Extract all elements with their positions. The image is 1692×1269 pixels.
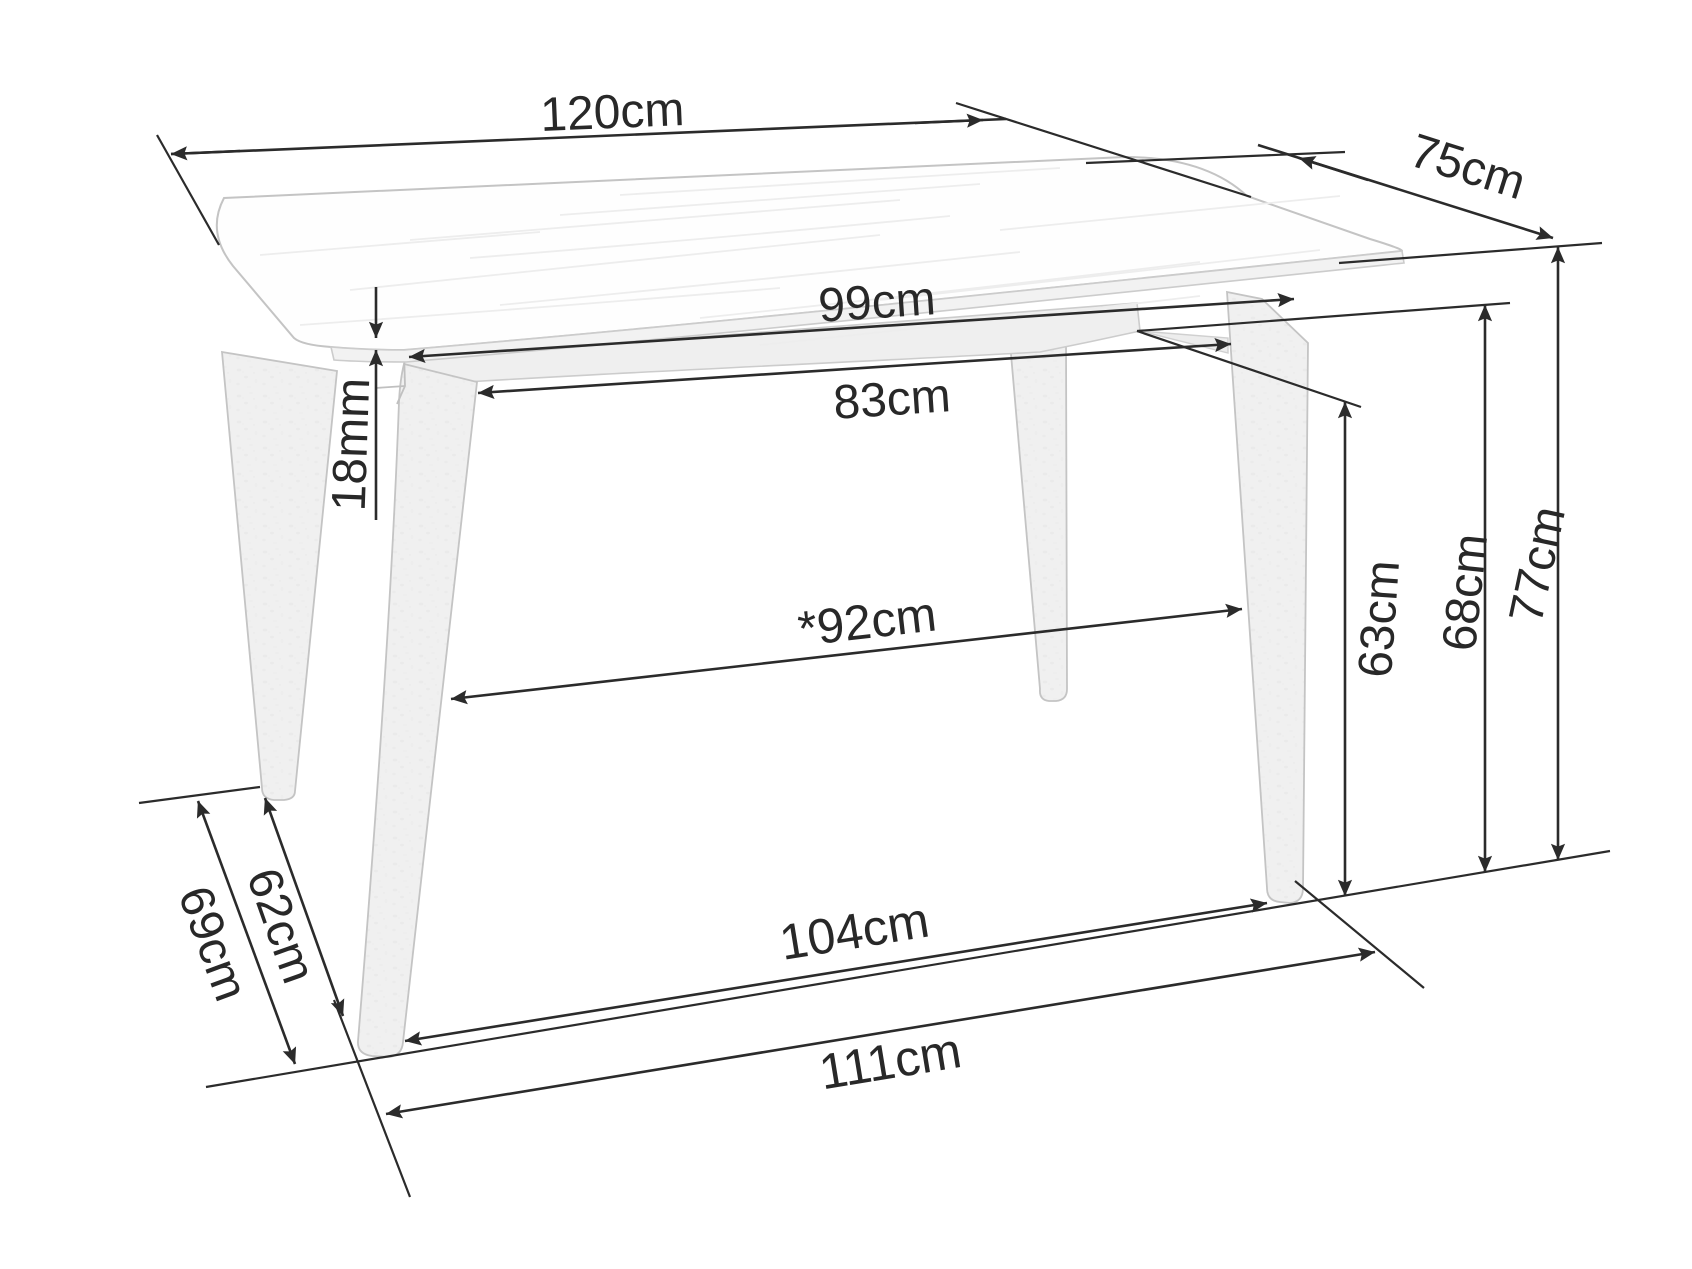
svg-text:77cm: 77cm: [1500, 502, 1576, 628]
svg-text:18mm: 18mm: [323, 377, 381, 512]
svg-text:99cm: 99cm: [817, 272, 938, 333]
svg-text:111cm: 111cm: [815, 1022, 965, 1100]
svg-text:83cm: 83cm: [832, 369, 953, 430]
svg-text:63cm: 63cm: [1349, 559, 1410, 680]
svg-text:120cm: 120cm: [539, 83, 685, 142]
svg-text:68cm: 68cm: [1433, 531, 1498, 653]
